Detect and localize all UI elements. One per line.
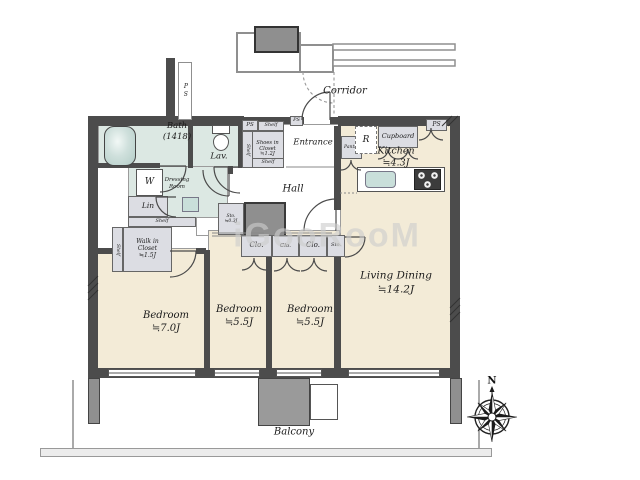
refrigerator-label: R [363,135,370,145]
burner-icon [418,172,425,179]
wall-dressing-hall [228,166,233,174]
wall-right [450,116,460,378]
linen-label: Lin [142,202,154,210]
shelf-label: Shelf [261,160,274,166]
closet-1: Clo. [241,235,272,257]
wall-bed1-top-stub [196,248,206,254]
closet-label: Clo. [280,243,291,249]
kitchen-living-floor [340,124,452,370]
pipe-space-label: PS [182,83,189,99]
cupboard: Cupboard [378,126,418,148]
storage-label: Sto. [331,243,341,249]
wall-ps-spur [166,58,175,118]
balcony-label: Balcony [274,426,314,439]
pipe-space-label: PS [432,122,440,129]
storage-small: Sto. ≒0.3J [218,203,244,235]
walkin-closet-shelf: Shelf [112,227,123,272]
window-living [348,369,440,377]
elevator-shaft [244,202,286,237]
toilet-tank [212,125,230,134]
corridor-elevator [255,27,298,52]
walkin-closet: Walk in Closet ≒1.5J [123,227,172,272]
shoes-closet-label: Shoes in Closet ≒1.2J [256,141,278,158]
corridor-outline [237,33,455,72]
pipe-space-label: PS [246,122,253,128]
stove [414,169,441,190]
dashed-boundary [303,72,334,116]
linen-shelf: Shelf [128,217,196,227]
balcony-post-right [450,378,462,424]
balcony-pillar [258,378,310,426]
bathtub [104,126,136,166]
shoes-closet-shelf-top: Shelf [258,121,284,131]
wall-bed1-bed2 [204,250,210,370]
washer-label: W [145,177,154,187]
shelf-label: Shelf [155,219,168,225]
pipe-space-entrance-left: PS [242,120,258,131]
floor-plan: PS PS Shelf Shelf Shoes in Closet ≒1.2J … [0,0,640,480]
storage-small-label: Sto. ≒0.3J [225,214,238,224]
burner-icon [424,181,431,188]
pipe-space-spur: PS [178,62,192,120]
balcony-pillar-white [310,384,338,420]
cupboard-label: Cupboard [382,133,415,140]
corridor-label: Corridor [323,85,367,98]
closet-label: Clo. [306,242,320,250]
north-label: N [487,375,496,388]
balcony-railing [40,448,492,457]
window-bedroom1 [108,369,196,377]
shelf-label: Shelf [245,144,250,156]
burner-icon [431,172,438,179]
linen-closet: Lin [128,196,168,217]
balcony-post-left [88,378,100,424]
shoes-closet-shelf-bottom: Shelf [252,158,284,168]
pipe-space-entrance-right: PS [290,116,303,126]
walkin-closet-label: Walk in Closet ≒1.5J [136,239,158,259]
pipe-space-label: PS [293,118,300,124]
closet-2: Clo. [272,235,299,257]
storage-living: Sto. [327,235,345,257]
wall-living-left [334,257,341,370]
wall-bed2-bed3 [266,255,272,370]
closet-3: Clo. [299,235,327,257]
refrigerator-space: R [355,126,377,154]
kitchen-sink [365,171,396,188]
balcony-side-line-left [72,380,74,450]
wall-bath-lav [188,122,193,168]
wall-left [88,116,98,378]
window-bedroom3 [276,369,322,377]
shelf-label: Shelf [115,244,120,256]
wall-kitchen-left [334,126,341,210]
shelf-label: Shelf [264,123,277,129]
dressing-cabinet [182,197,199,212]
window-bedroom2 [214,369,260,377]
door-arc [302,92,330,120]
balcony-side-line-right [478,380,480,450]
washing-machine: W [136,169,163,196]
closet-label: Clo. [250,242,264,250]
pipe-space-kitchen: PS [426,119,447,131]
compass-rose-icon [467,386,517,442]
